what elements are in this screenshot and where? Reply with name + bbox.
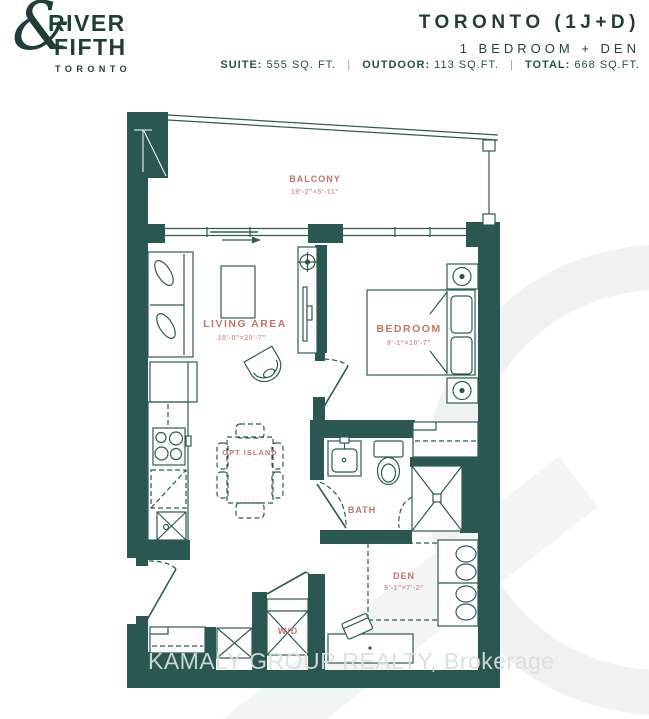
toilet <box>374 441 403 485</box>
sofa <box>148 252 193 357</box>
balcony-rail-post <box>483 140 495 151</box>
stove-handle <box>186 436 191 446</box>
faucet-icon <box>340 437 349 443</box>
shower-door-swing <box>399 497 412 528</box>
island-chair <box>236 503 264 518</box>
den-dims: 9'-1"×7'-2" <box>384 585 424 592</box>
bed-pillow <box>451 296 472 333</box>
balcony-rail-outer <box>168 115 498 135</box>
coffee-table <box>221 266 255 318</box>
armchair <box>244 346 286 387</box>
daybed-pillow <box>456 604 476 620</box>
wd-label: W/D <box>278 626 299 636</box>
lamp-icon <box>459 388 464 393</box>
wall-bath-top <box>310 420 415 438</box>
corner-cabinet <box>151 470 186 508</box>
living-label: LIVING AREA <box>203 318 287 330</box>
bath-label: BATH <box>348 505 376 515</box>
bath-door <box>317 482 346 528</box>
floorplan-svg: BALCONY 19'-2"×5'-11" LIVING AREA 10'-0"… <box>0 0 649 719</box>
island-table <box>227 437 273 503</box>
island-chair <box>217 472 228 498</box>
bedroom-label: BEDROOM <box>376 323 441 335</box>
bedroom-dims: 9'-1"×10'-7" <box>387 340 431 347</box>
balcony-label: BALCONY <box>289 174 341 184</box>
balcony-rail-inner <box>168 120 498 140</box>
stove <box>153 428 191 465</box>
wall-window-pier <box>308 224 343 243</box>
den <box>328 540 478 663</box>
island-chair <box>272 472 283 498</box>
balcony-dims: 19'-2"×5'-11" <box>291 189 339 196</box>
den-outline <box>368 543 438 620</box>
bedroom-door-hinge-top <box>315 353 325 361</box>
wall-bath-den-divider <box>320 530 412 544</box>
nightstand <box>447 378 478 403</box>
daybed-pillow <box>456 546 476 562</box>
wall-top-left-corner <box>127 224 165 243</box>
media-console <box>298 247 318 353</box>
daybed-pillow <box>456 564 476 580</box>
entry-door <box>147 561 176 620</box>
daybed <box>438 540 478 626</box>
bedroom-door <box>322 359 348 410</box>
bed-pillow <box>451 337 472 374</box>
entry <box>147 561 252 658</box>
wall-bath-left <box>310 438 324 480</box>
den-label: DEN <box>393 571 415 581</box>
island-label: OPT ISLAND <box>222 448 277 457</box>
balcony-rail-post <box>483 214 495 225</box>
brokerage-watermark: KAMALY GROUP REALTY, Brokerage <box>148 648 555 675</box>
wall-right-shower-bump <box>460 457 500 533</box>
fridge <box>150 362 197 402</box>
tv-mount <box>307 306 312 320</box>
lamp-icon <box>459 274 464 279</box>
daybed-pillow <box>456 586 476 602</box>
tv <box>303 287 307 341</box>
living-dims: 10'-0"×20'-7" <box>218 335 267 342</box>
vanity-sink <box>328 437 361 476</box>
floorplan-page: & RIVER FIFTH TORONTO TORONTO (1J+D) 1 B… <box>0 0 649 719</box>
opt-island <box>217 424 283 518</box>
kitchen <box>148 402 191 540</box>
bedroom-closet <box>413 422 478 457</box>
nightstand <box>447 264 478 289</box>
balcony <box>168 115 498 225</box>
shower-drain <box>433 494 441 502</box>
wall-kitchen-end <box>146 540 190 560</box>
sliding-door-arrow <box>210 232 261 244</box>
shower <box>412 466 462 531</box>
kitchen-sink <box>157 512 186 540</box>
island-chair <box>236 424 264 438</box>
wall-top-right-corner <box>466 222 500 247</box>
